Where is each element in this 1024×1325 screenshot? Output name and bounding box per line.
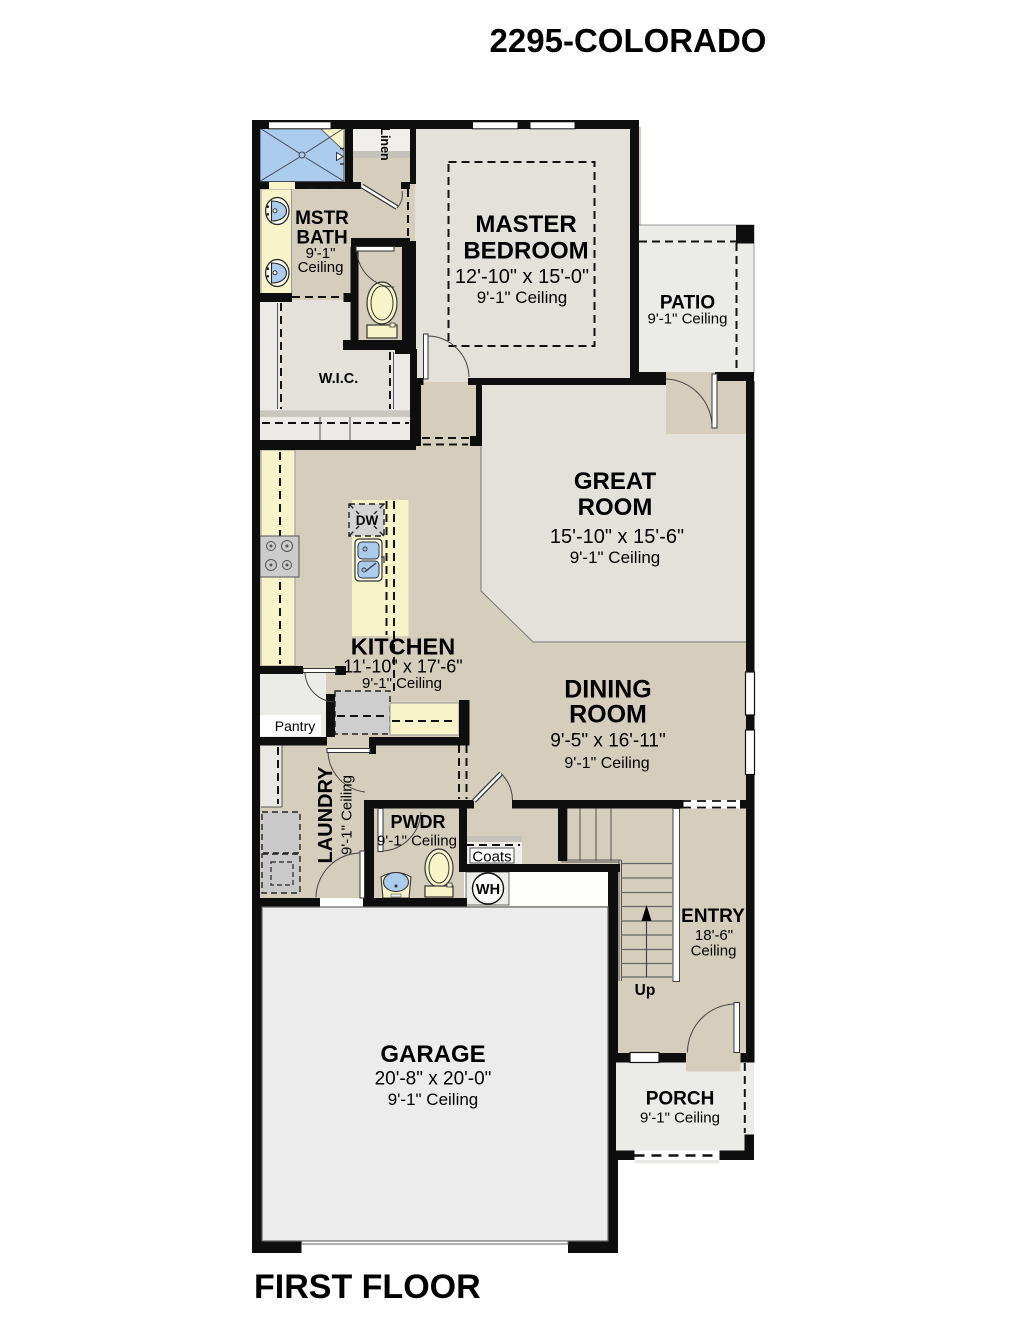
svg-text:Ceiling: Ceiling	[298, 259, 344, 276]
svg-text:9'-1" Ceiling: 9'-1" Ceiling	[362, 675, 442, 692]
svg-text:Ceiling: Ceiling	[691, 943, 737, 960]
svg-text:9'-1" Ceiling: 9'-1" Ceiling	[564, 755, 649, 772]
svg-text:20'-8" x 20'-0": 20'-8" x 20'-0"	[375, 1069, 492, 1090]
svg-text:12'-10" x 15'-0": 12'-10" x 15'-0"	[455, 266, 589, 288]
svg-text:ROOM: ROOM	[569, 701, 647, 729]
svg-text:Up: Up	[635, 982, 656, 999]
svg-text:Linen: Linen	[378, 127, 392, 160]
svg-text:9'-1" Ceiling: 9'-1" Ceiling	[640, 1110, 720, 1127]
svg-text:9'-1" Ceiling: 9'-1" Ceiling	[339, 775, 356, 855]
svg-text:9'-1" Ceiling: 9'-1" Ceiling	[570, 548, 661, 567]
svg-text:9'-1" Ceiling: 9'-1" Ceiling	[388, 1090, 479, 1109]
svg-text:GREAT: GREAT	[574, 468, 657, 495]
svg-text:DW: DW	[356, 513, 379, 528]
svg-text:9'-1" Ceiling: 9'-1" Ceiling	[477, 288, 568, 307]
svg-text:PORCH: PORCH	[646, 1089, 715, 1110]
svg-text:Coats: Coats	[472, 849, 511, 866]
svg-text:15'-10" x 15'-6": 15'-10" x 15'-6"	[550, 526, 684, 548]
svg-text:18'-6": 18'-6"	[695, 927, 733, 944]
svg-text:Pantry: Pantry	[275, 718, 315, 734]
svg-text:W.I.C.: W.I.C.	[319, 371, 358, 387]
svg-text:MASTER: MASTER	[475, 211, 576, 238]
svg-text:9'-1" Ceiling: 9'-1" Ceiling	[377, 833, 457, 850]
svg-text:GARAGE: GARAGE	[380, 1041, 485, 1068]
svg-text:FIRST FLOOR: FIRST FLOOR	[254, 1268, 481, 1306]
svg-text:DINING: DINING	[564, 676, 652, 704]
svg-text:PWDR: PWDR	[391, 812, 446, 832]
svg-text:LAUNDRY: LAUNDRY	[315, 766, 337, 864]
svg-text:ROOM: ROOM	[578, 494, 653, 521]
svg-text:2295-COLORADO: 2295-COLORADO	[490, 22, 767, 59]
svg-text:9'-5" x 16'-11": 9'-5" x 16'-11"	[550, 731, 665, 752]
svg-text:ENTRY: ENTRY	[681, 906, 745, 927]
svg-text:BEDROOM: BEDROOM	[463, 238, 588, 265]
svg-text:MSTR: MSTR	[295, 208, 349, 229]
svg-text:9'-1" Ceiling: 9'-1" Ceiling	[648, 311, 728, 328]
svg-text:11'-10" x 17'-6": 11'-10" x 17'-6"	[343, 657, 462, 677]
svg-text:WH: WH	[476, 882, 500, 898]
